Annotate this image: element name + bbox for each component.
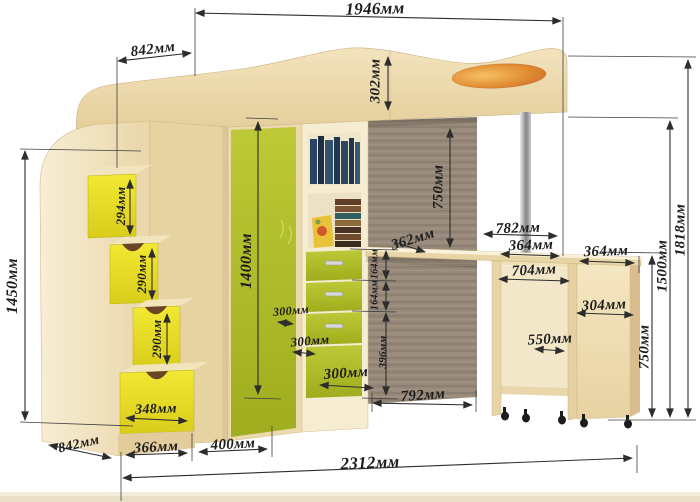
dim-drawer-width: 300мм xyxy=(323,364,369,384)
drawer-handle xyxy=(325,292,343,296)
drawer-handle xyxy=(325,261,343,265)
floor-strip xyxy=(0,492,700,502)
dim-shelf-width-a: 364мм xyxy=(508,237,553,256)
dim-drawer-height-1: 164мм xyxy=(370,249,381,279)
dim-shelf-width-b: 364мм xyxy=(583,243,628,262)
dim-step-drawer-1: 294мм xyxy=(113,187,129,226)
cabinet-front xyxy=(577,262,630,419)
dim-bed-overhang: 782мм xyxy=(495,220,540,239)
dim-shelf-depth-b: 300мм xyxy=(290,331,330,350)
dim-table-interior-width: 704мм xyxy=(511,261,556,280)
dim-total-width: 2312мм xyxy=(340,452,400,475)
drawer-handle xyxy=(325,324,343,328)
dim-step-drawer-2: 290мм xyxy=(134,255,150,294)
dim-bed-length: 1946мм xyxy=(345,0,405,20)
dim-total-height: 1818мм xyxy=(673,204,690,256)
dim-lower-front-height: 396мм xyxy=(377,335,389,368)
dim-shelf-height: 1500мм xyxy=(655,240,672,292)
dim-table-height: 750мм xyxy=(637,325,654,370)
dim-rail-height: 302мм xyxy=(368,59,385,104)
dim-front-section-b: 400мм xyxy=(210,435,255,454)
dim-wardrobe-height: 1400мм xyxy=(238,233,256,289)
dim-base-drawer-width: 348мм xyxy=(135,401,177,418)
furniture-dimension-diagram: 1946мм 842мм 302мм 1450мм 294мм 290мм 29… xyxy=(0,0,700,502)
dim-cabinet-width: 304мм xyxy=(581,296,626,315)
dim-step-drawer-3: 290мм xyxy=(149,320,165,359)
dim-bed-clearance: 750мм xyxy=(431,165,448,210)
dim-stairs-height: 1450мм xyxy=(4,258,22,314)
desk-left-panel xyxy=(492,261,501,416)
dim-front-section-a: 366мм xyxy=(133,438,178,457)
dim-table-inner-depth: 550мм xyxy=(527,330,572,349)
dim-drawer-height-2: 164мм xyxy=(370,280,381,310)
dim-shelf-depth-a: 300мм xyxy=(272,302,309,320)
dim-desk-length: 792мм xyxy=(400,386,446,406)
